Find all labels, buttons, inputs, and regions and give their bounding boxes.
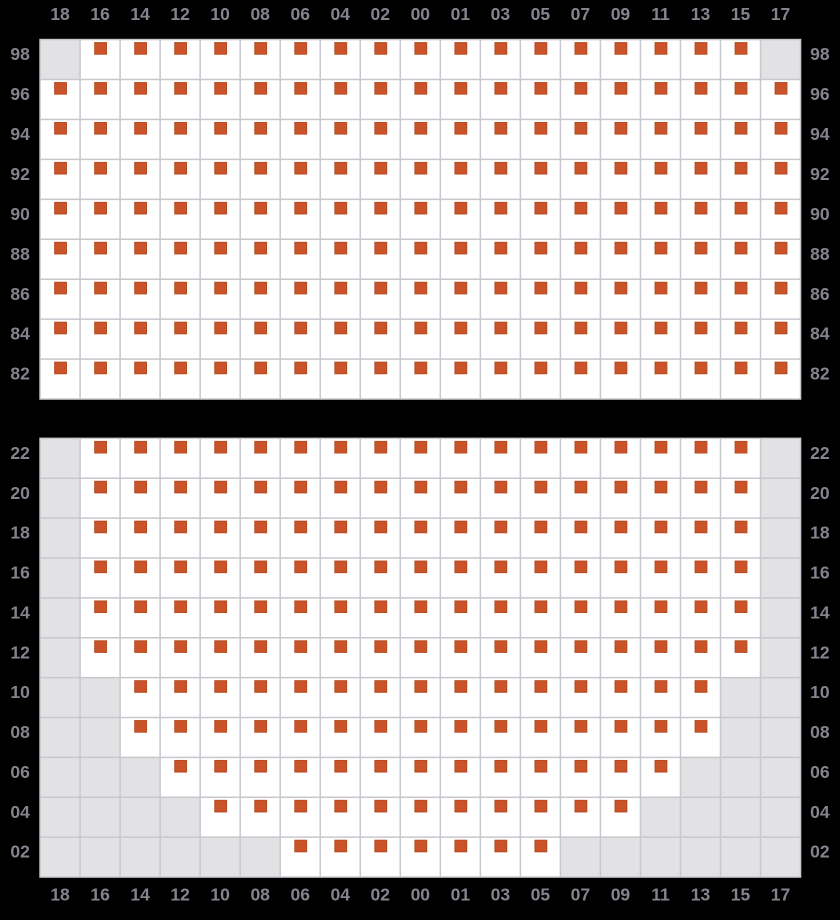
svg-text:04: 04 xyxy=(331,885,351,905)
svg-text:06: 06 xyxy=(290,4,310,24)
svg-text:98: 98 xyxy=(810,44,830,64)
svg-text:08: 08 xyxy=(810,722,830,742)
svg-text:90: 90 xyxy=(10,204,30,224)
svg-text:96: 96 xyxy=(810,84,830,104)
svg-text:05: 05 xyxy=(531,4,551,24)
svg-text:11: 11 xyxy=(651,885,670,905)
svg-text:16: 16 xyxy=(90,885,110,905)
svg-text:92: 92 xyxy=(10,164,30,184)
svg-text:04: 04 xyxy=(331,4,351,24)
svg-text:04: 04 xyxy=(10,802,30,822)
svg-text:20: 20 xyxy=(10,483,30,503)
svg-text:06: 06 xyxy=(290,885,310,905)
svg-text:82: 82 xyxy=(810,364,830,384)
svg-text:14: 14 xyxy=(130,4,150,24)
svg-text:16: 16 xyxy=(810,563,830,583)
svg-text:08: 08 xyxy=(250,4,270,24)
svg-text:94: 94 xyxy=(810,124,830,144)
svg-text:10: 10 xyxy=(210,4,230,24)
svg-text:06: 06 xyxy=(10,762,30,782)
svg-text:17: 17 xyxy=(771,885,790,905)
svg-text:13: 13 xyxy=(691,4,711,24)
svg-text:92: 92 xyxy=(810,164,830,184)
svg-text:09: 09 xyxy=(611,4,631,24)
svg-text:90: 90 xyxy=(810,204,830,224)
svg-text:84: 84 xyxy=(810,324,830,344)
svg-text:88: 88 xyxy=(810,244,830,264)
svg-text:18: 18 xyxy=(10,523,30,543)
svg-text:20: 20 xyxy=(810,483,830,503)
svg-text:10: 10 xyxy=(210,885,230,905)
svg-text:04: 04 xyxy=(810,802,830,822)
svg-text:18: 18 xyxy=(810,523,830,543)
svg-text:84: 84 xyxy=(10,324,30,344)
svg-text:11: 11 xyxy=(651,4,670,24)
svg-text:09: 09 xyxy=(611,885,631,905)
svg-text:14: 14 xyxy=(130,885,150,905)
svg-text:08: 08 xyxy=(10,722,30,742)
svg-text:08: 08 xyxy=(250,885,270,905)
svg-text:02: 02 xyxy=(371,885,391,905)
svg-text:00: 00 xyxy=(411,4,431,24)
svg-text:16: 16 xyxy=(90,4,110,24)
svg-text:18: 18 xyxy=(50,885,70,905)
svg-text:82: 82 xyxy=(10,364,30,384)
svg-text:12: 12 xyxy=(170,885,190,905)
svg-text:01: 01 xyxy=(451,885,471,905)
svg-text:02: 02 xyxy=(10,842,30,862)
svg-text:12: 12 xyxy=(10,642,30,662)
svg-text:14: 14 xyxy=(10,602,30,622)
svg-text:15: 15 xyxy=(731,885,751,905)
svg-text:86: 86 xyxy=(810,284,830,304)
svg-text:01: 01 xyxy=(451,4,471,24)
svg-text:03: 03 xyxy=(491,4,511,24)
svg-text:10: 10 xyxy=(10,682,30,702)
svg-text:00: 00 xyxy=(411,885,431,905)
svg-text:14: 14 xyxy=(810,602,830,622)
svg-text:06: 06 xyxy=(810,762,830,782)
svg-text:22: 22 xyxy=(810,443,830,463)
svg-text:88: 88 xyxy=(10,244,30,264)
svg-text:03: 03 xyxy=(491,885,511,905)
svg-text:05: 05 xyxy=(531,885,551,905)
svg-text:96: 96 xyxy=(10,84,30,104)
svg-text:16: 16 xyxy=(10,563,30,583)
svg-text:17: 17 xyxy=(771,4,790,24)
svg-text:86: 86 xyxy=(10,284,30,304)
svg-text:18: 18 xyxy=(50,4,70,24)
svg-text:13: 13 xyxy=(691,885,711,905)
svg-text:22: 22 xyxy=(10,443,30,463)
svg-text:02: 02 xyxy=(371,4,391,24)
svg-text:12: 12 xyxy=(170,4,190,24)
svg-text:07: 07 xyxy=(571,885,590,905)
svg-text:15: 15 xyxy=(731,4,751,24)
svg-text:98: 98 xyxy=(10,44,30,64)
svg-text:02: 02 xyxy=(810,842,830,862)
svg-text:12: 12 xyxy=(810,642,830,662)
svg-text:10: 10 xyxy=(810,682,830,702)
svg-text:07: 07 xyxy=(571,4,590,24)
svg-text:94: 94 xyxy=(10,124,30,144)
